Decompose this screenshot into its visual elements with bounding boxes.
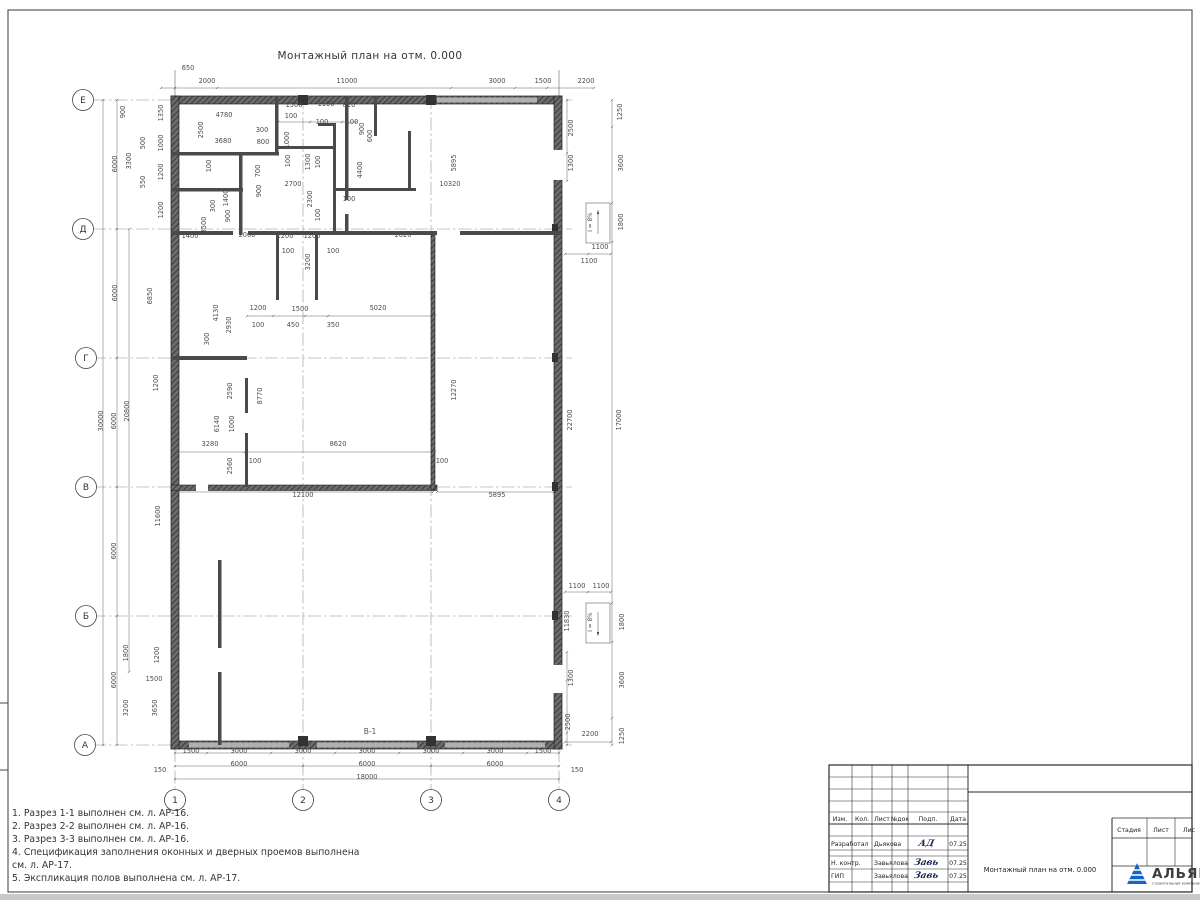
drawing-primitive [245, 433, 248, 487]
dim-label: 1200 [157, 202, 165, 219]
dim-label: 150 [154, 766, 167, 774]
dim-label: 6000 [110, 413, 118, 430]
dim-label: 300 [209, 200, 217, 213]
dim-label: 1300 [304, 154, 312, 171]
dim-label: 6000 [110, 543, 118, 560]
dim-label: 1200 [157, 164, 165, 181]
axis-bubbles: ЕДГВБА1234 [73, 90, 570, 811]
sheet-frame [0, 10, 1200, 900]
dim-label: 700 [254, 165, 262, 178]
dim-label: 150 [571, 766, 584, 774]
dim-label: 11600 [154, 506, 162, 527]
dim-label: 2500 [564, 714, 572, 731]
dim-label: 1500 [146, 675, 163, 683]
drawing-primitive [437, 98, 537, 103]
axis-bubble-label: Б [83, 612, 89, 622]
dim-label: 1200 [304, 232, 321, 240]
title-block: Изм.Кол.Лист№докПодп.Дата РазработалДьяк… [829, 765, 1200, 892]
dim-label: 20800 [123, 401, 131, 422]
dim-label: 100 [314, 209, 322, 222]
dim-label: 18000 [357, 773, 378, 781]
dim-label: 1500 [292, 305, 309, 313]
dim-label: 3000 [231, 747, 248, 755]
drawing-primitive [408, 131, 411, 190]
dim-label: 1100 [593, 582, 610, 590]
dim-label: 5020 [370, 304, 387, 312]
tb-name: Завьялова [874, 860, 908, 867]
dim-label: 30000 [97, 411, 105, 432]
axis-bubble-label: Е [80, 96, 86, 106]
dim-label: 2000 [199, 77, 216, 85]
tb-stage-header: Стадия [1117, 827, 1141, 834]
dim-label: 100 [284, 155, 292, 168]
alliance-logo: АЛЬЯНС строительная компания [1125, 863, 1200, 886]
dim-label: 550 [139, 176, 147, 189]
tb-column-header: №док [890, 816, 909, 823]
drawing-primitive [171, 152, 279, 156]
dim-label: 100 [282, 247, 295, 255]
dim-label: 1200 [250, 304, 267, 312]
dim-label: 2590 [226, 383, 234, 400]
dim-label: 450 [287, 321, 300, 329]
dim-label: 1800 [122, 645, 130, 662]
dim-label: 350 [327, 321, 340, 329]
dim-label: 100 [327, 247, 340, 255]
dim-label: 3600 [618, 672, 626, 689]
tb-signature: Завь [913, 870, 939, 881]
ramp-slope-label-top: i = 8% [588, 212, 594, 232]
dim-label: 1000 [228, 416, 236, 433]
dim-label: 5895 [450, 155, 458, 172]
tb-column-header: Изм. [833, 816, 848, 823]
drawing-primitive [460, 231, 562, 235]
notes: 1. Разрез 1-1 выполнен см. л. АР-16.2. Р… [12, 808, 360, 884]
dim-label: 900 [358, 123, 366, 136]
dim-label: 100 [314, 156, 322, 169]
dim-label: 2300 [306, 191, 314, 208]
dim-label: 6000 [487, 760, 504, 768]
axis-bubble-label: Г [83, 354, 89, 364]
drawing-primitive [333, 123, 336, 233]
dim-label: 3680 [215, 137, 232, 145]
dim-label: 1400 [222, 190, 230, 207]
drawing-primitive [171, 485, 437, 491]
drawing-primitive [552, 482, 558, 491]
drawing-primitive [245, 378, 248, 413]
dim-label: 1000 [283, 132, 291, 149]
dim-label: 6000 [110, 672, 118, 689]
dim-label: 5895 [489, 491, 506, 499]
note-line: 2. Разрез 2-2 выполнен см. л. АР-16. [12, 821, 189, 832]
dim-label: 2930 [225, 317, 233, 334]
dim-label: 3280 [202, 440, 219, 448]
tb-role: Н. контр. [831, 860, 861, 867]
dim-label: 1300 [567, 670, 575, 687]
note-line: см. л. АР-17. [12, 860, 72, 871]
dim-label: 12270 [450, 380, 458, 401]
axis-bubble-label: В [83, 483, 89, 493]
dim-label: 100 [316, 118, 329, 126]
note-line: 3. Разрез 3-3 выполнен см. л. АР-16. [12, 834, 189, 845]
dim-label: 11830 [563, 611, 571, 632]
dim-label: 3000 [487, 747, 504, 755]
note-line: 4. Спецификация заполнения оконных и две… [12, 847, 360, 858]
drawing-primitive [553, 150, 563, 180]
drawing-primitive [336, 188, 416, 191]
dim-label: 650 [182, 64, 195, 72]
dim-label: 3600 [617, 155, 625, 172]
dim-label: 12100 [293, 491, 314, 499]
dim-label: 1500 [286, 101, 303, 109]
dim-label: 820 [343, 101, 356, 109]
dim-label: 100 [249, 457, 262, 465]
dim-label: 300 [256, 126, 269, 134]
dimension-lines [103, 88, 612, 779]
dim-label: 900 [224, 210, 232, 223]
drawing-primitive [345, 214, 349, 235]
dim-label: 6140 [213, 416, 221, 433]
dim-label: 1200 [153, 647, 161, 664]
dim-label: 100 [436, 457, 449, 465]
drawing-primitive [218, 560, 222, 648]
drawing-primitive [374, 96, 377, 136]
note-line: 5. Экспликация полов выполнена см. л. АР… [12, 873, 240, 884]
dim-label: 4400 [356, 162, 364, 179]
stage-headers: СтадияЛистЛис [1117, 827, 1196, 834]
dim-label: 100 [205, 160, 213, 173]
dim-label: 100 [346, 118, 359, 126]
dim-label: 3500 [200, 217, 208, 234]
dim-label: 2200 [578, 77, 595, 85]
dim-label: 600 [366, 130, 374, 143]
drawing-primitive [554, 96, 562, 749]
tb-column-header: Лист [874, 816, 890, 823]
drawing-primitive [553, 665, 563, 693]
drawing-primitive [171, 96, 179, 749]
dim-label: 2500 [567, 120, 575, 137]
dim-label: 3000 [359, 747, 376, 755]
drawing-primitive [239, 152, 243, 235]
tb-signature: Завь [913, 857, 939, 868]
drawing-primitive [552, 353, 558, 362]
floor-plan-canvas: Монтажный план на отм. 0.000 [0, 0, 1200, 900]
drawing-primitive [171, 188, 243, 192]
tb-date: 07.25 [949, 860, 967, 867]
drawing-primitive [276, 234, 279, 300]
dim-label: 2200 [582, 730, 599, 738]
dim-label: 11000 [337, 77, 358, 85]
logo-tagline: строительная компания [1152, 881, 1200, 886]
drawing-primitive [196, 485, 208, 492]
dim-label: 1250 [616, 104, 624, 121]
dim-label: 800 [257, 138, 270, 146]
window-mark: В-1 [364, 727, 377, 736]
dim-label: 3000 [423, 747, 440, 755]
axis-bubble-label: А [82, 741, 89, 751]
dim-label: 8770 [256, 388, 264, 405]
dim-label: 1500 [535, 747, 552, 755]
dim-label: 2560 [226, 458, 234, 475]
dim-label: 1200 [152, 375, 160, 392]
dim-label: 17000 [615, 410, 623, 431]
tb-date: 07.25 [949, 841, 967, 848]
drawing-primitive [171, 356, 247, 360]
dim-label: 3300 [125, 153, 133, 170]
tb-column-header: Подп. [919, 816, 938, 823]
drawing-title: Монтажный план на отм. 0.000 [278, 50, 463, 62]
dim-label: 900 [119, 106, 127, 119]
tb-date: 07.25 [949, 873, 967, 880]
dim-label: 22700 [566, 410, 574, 431]
dim-label: 2000 [239, 231, 256, 239]
dim-label: 3000 [489, 77, 506, 85]
dim-label: 3200 [122, 700, 130, 717]
dim-label: 1500 [535, 77, 552, 85]
dim-label: 900 [255, 185, 263, 198]
axis-bubble-label: 3 [428, 796, 434, 806]
dim-label: 500 [139, 137, 147, 150]
dim-label: 1800 [617, 214, 625, 231]
doc-title: Монтажный план на отм. 0.000 [984, 866, 1096, 874]
axis-bubble-label: 2 [300, 796, 306, 806]
drawing-primitive [315, 234, 318, 300]
dim-label: 6000 [111, 285, 119, 302]
dim-label: 2700 [285, 180, 302, 188]
drawing-primitive [552, 611, 558, 620]
dim-label: 100 [252, 321, 265, 329]
drawing-primitive [345, 231, 437, 235]
tb-signature: АД [917, 838, 937, 849]
dim-label: 4130 [212, 305, 220, 322]
tb-stage-header: Лис [1183, 827, 1196, 834]
dim-label: 1200 [277, 232, 294, 240]
drawing-primitive [298, 736, 308, 746]
tb-role: Разработал [831, 840, 869, 848]
dim-label: 1100 [318, 100, 335, 108]
dim-label: 4780 [216, 111, 233, 119]
tb-stage-header: Лист [1153, 827, 1169, 834]
drawing-primitive [8, 10, 1192, 892]
dim-label: 10320 [440, 180, 461, 188]
dim-label: 1100 [581, 257, 598, 265]
drawing-primitive [426, 736, 436, 746]
axis-bubble-label: 1 [172, 796, 178, 806]
dim-label: 3200 [304, 254, 312, 271]
dim-label: 3000 [295, 747, 312, 755]
drawing-primitive [218, 672, 222, 745]
dim-label: 300 [203, 333, 211, 346]
dim-label: 1300 [567, 155, 575, 172]
dim-label: 1400 [182, 232, 199, 240]
drawing-primitive [426, 95, 436, 105]
dim-label: 1500 [183, 747, 200, 755]
dim-label: 6850 [146, 288, 154, 305]
dim-label: 2500 [197, 122, 205, 139]
dim-label: 1350 [157, 105, 165, 122]
dim-label: 6000 [231, 760, 248, 768]
drawing-primitive [431, 235, 435, 490]
drawing-sheet: Монтажный план на отм. 0.000 [0, 0, 1200, 900]
dim-label: 1800 [618, 614, 626, 631]
dim-label: 1100 [592, 243, 609, 251]
title-block-headers: Изм.Кол.Лист№докПодп.Дата [833, 816, 966, 823]
dim-label: 8620 [330, 440, 347, 448]
drawing-primitive [345, 96, 349, 200]
dim-label: 1100 [569, 582, 586, 590]
ramp-slope-label-bottom: i = 8% [588, 612, 594, 632]
dim-label: 6000 [111, 156, 119, 173]
dim-label: 100 [343, 195, 356, 203]
title-block-rows: РазработалДьяковаАД07.25Н. контр.Завьяло… [831, 838, 967, 881]
tb-column-header: Дата [950, 816, 966, 823]
tb-column-header: Кол. [855, 816, 869, 823]
note-line: 1. Разрез 1-1 выполнен см. л. АР-16. [12, 808, 189, 819]
axis-bubble-label: Д [79, 225, 86, 235]
drawing-primitive [0, 894, 1200, 900]
dim-label: 6000 [359, 760, 376, 768]
dim-label: 2620 [395, 231, 412, 239]
dim-label: 1000 [157, 135, 165, 152]
dim-label: 3650 [151, 700, 159, 717]
dim-label: 100 [285, 112, 298, 120]
axis-bubble-label: 4 [556, 796, 562, 806]
dim-label: 1250 [618, 728, 626, 745]
tb-name: Дьякова [874, 841, 901, 848]
tb-role: ГИП [831, 873, 844, 880]
tb-name: Завьялова [874, 873, 908, 880]
